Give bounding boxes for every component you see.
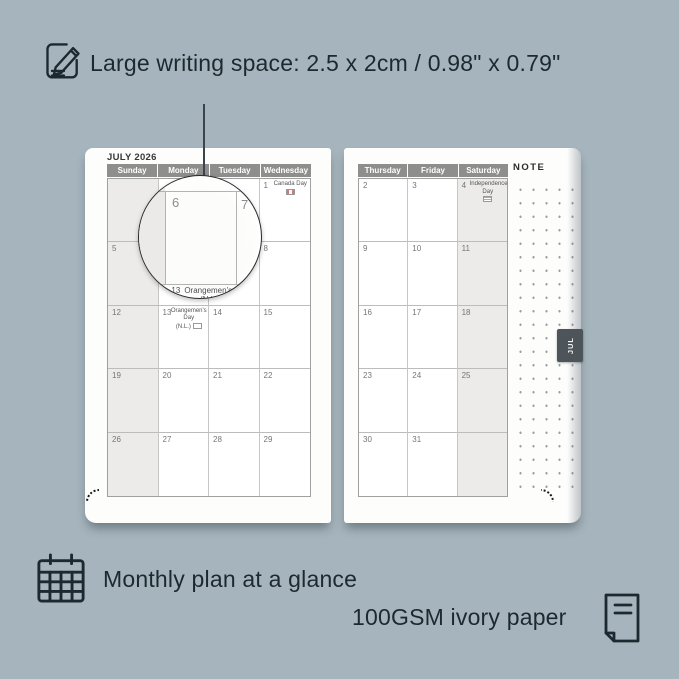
pointer-line bbox=[203, 104, 205, 178]
calendar-cell: 9 bbox=[359, 242, 408, 305]
calendar-cell: 2 bbox=[359, 179, 408, 242]
calendar-cell bbox=[458, 433, 507, 496]
day-header-cell: Saturday bbox=[459, 164, 508, 177]
calendar-cell: 11 bbox=[458, 242, 507, 305]
calendar-grid-right: 2 3 4 Independence Day 9 10 11 16 17 18 … bbox=[358, 178, 508, 497]
calendar-cell: 17 bbox=[408, 306, 457, 369]
calendar-cell: 8 bbox=[260, 242, 311, 305]
calendar-cell: 24 bbox=[408, 369, 457, 432]
magnifier-lens: 6 7 13Orangemen's Day (N.L.) bbox=[138, 175, 262, 299]
feature-text-paper: 100GSM ivory paper bbox=[352, 604, 567, 631]
calendar-cell: 31 bbox=[408, 433, 457, 496]
day-header-row: Thursday Friday Saturday bbox=[358, 164, 508, 177]
calendar-cell: 3 bbox=[408, 179, 457, 242]
month-title: JULY 2026 bbox=[107, 152, 157, 163]
calendar-cell: 12 bbox=[108, 306, 159, 369]
calendar-cell: 10 bbox=[408, 242, 457, 305]
month-tab-jul: JUL bbox=[557, 329, 583, 362]
holiday-label: Canada Day bbox=[274, 181, 307, 187]
day-header-cell: Thursday bbox=[358, 164, 407, 177]
planner-right-page: Thursday Friday Saturday 2 3 4 Independe… bbox=[344, 148, 581, 523]
calendar-grid-icon bbox=[36, 552, 86, 604]
calendar-cell: 21 bbox=[209, 369, 260, 432]
calendar-cell: 26 bbox=[108, 433, 159, 496]
calendar-cell-canada-day: 1 Canada Day bbox=[260, 179, 311, 242]
calendar-cell: 15 bbox=[260, 306, 311, 369]
calendar-cell: 23 bbox=[359, 369, 408, 432]
calendar-cell: 19 bbox=[108, 369, 159, 432]
product-image: Large writing space: 2.5 x 2cm / 0.98" x… bbox=[0, 0, 679, 679]
nl-flag-icon bbox=[193, 323, 202, 329]
holiday-label: Orangemen's Day bbox=[171, 308, 208, 323]
holiday-label: Independence Day bbox=[470, 181, 506, 196]
calendar-cell: 25 bbox=[458, 369, 507, 432]
lens-holiday-caption: 13Orangemen's Day bbox=[159, 286, 261, 295]
paper-sheet-icon bbox=[598, 592, 642, 644]
pencil-note-icon bbox=[42, 36, 84, 84]
day-header-cell: Wednesday bbox=[261, 164, 311, 177]
lens-day-number: 7 bbox=[241, 197, 248, 212]
calendar-cell-orangemens-day: 13 Orangemen's Day (N.L.) bbox=[159, 306, 210, 369]
calendar-cell: 18 bbox=[458, 306, 507, 369]
calendar-cell: 14 bbox=[209, 306, 260, 369]
holiday-note: (N.L.) bbox=[176, 324, 191, 330]
feature-text-writing-space: Large writing space: 2.5 x 2cm / 0.98" x… bbox=[90, 50, 560, 77]
calendar-cell: 29 bbox=[260, 433, 311, 496]
feature-text-monthly: Monthly plan at a glance bbox=[103, 566, 357, 593]
calendar-cell: 28 bbox=[209, 433, 260, 496]
day-header-cell: Friday bbox=[408, 164, 457, 177]
us-flag-icon bbox=[483, 196, 492, 202]
calendar-cell: 30 bbox=[359, 433, 408, 496]
calendar-cell: 22 bbox=[260, 369, 311, 432]
calendar-cell: 20 bbox=[159, 369, 210, 432]
lens-shaded-column bbox=[139, 176, 165, 298]
calendar-cell: 16 bbox=[359, 306, 408, 369]
day-header-cell: Tuesday bbox=[210, 164, 260, 177]
calendar-cell-independence-day: 4 Independence Day bbox=[458, 179, 507, 242]
lens-day-number: 6 bbox=[172, 195, 179, 210]
canada-flag-icon bbox=[286, 189, 295, 195]
note-label: NOTE bbox=[513, 162, 545, 173]
calendar-cell: 27 bbox=[159, 433, 210, 496]
